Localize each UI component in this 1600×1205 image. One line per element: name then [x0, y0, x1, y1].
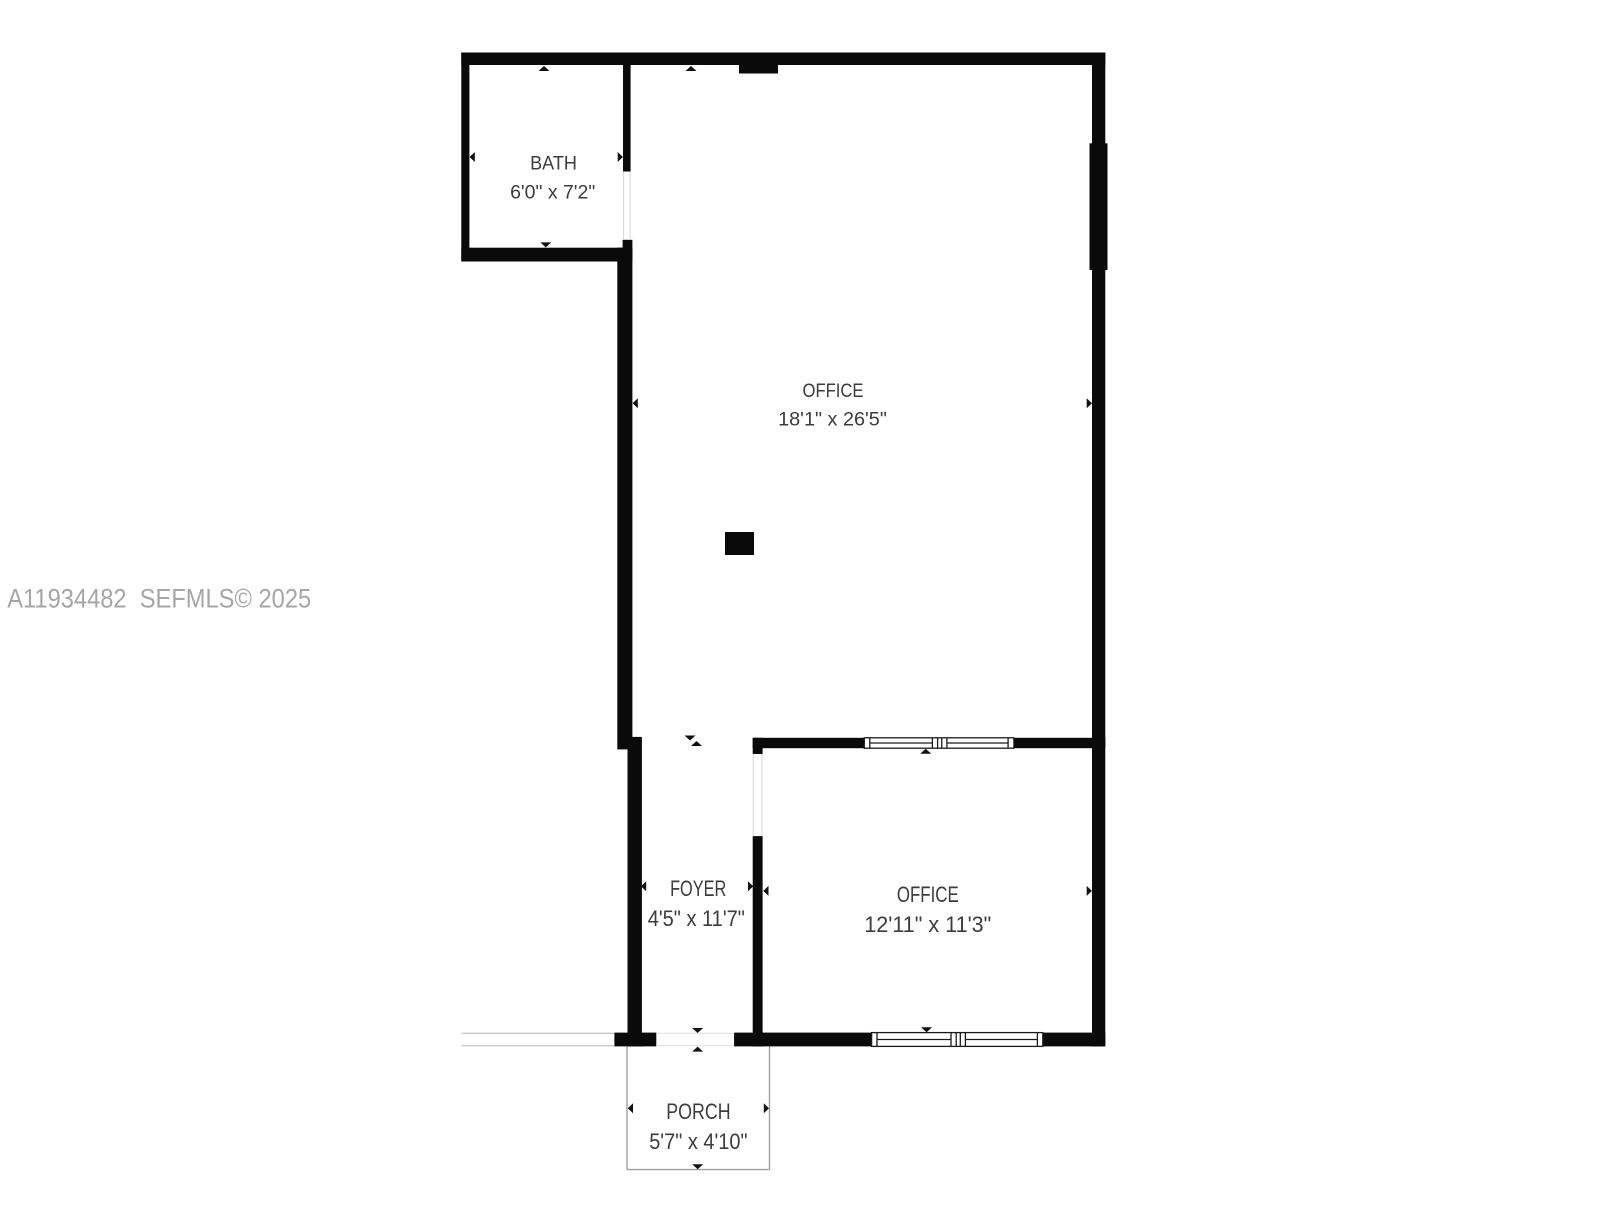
svg-text:BATH: BATH [530, 153, 577, 175]
svg-text:18'1" x 26'5": 18'1" x 26'5" [778, 409, 887, 431]
svg-text:12'11" x 11'3": 12'11" x 11'3" [864, 912, 991, 937]
svg-text:4'5" x 11'7": 4'5" x 11'7" [648, 906, 745, 931]
svg-text:OFFICE: OFFICE [897, 882, 959, 907]
svg-text:FOYER: FOYER [670, 876, 726, 901]
svg-text:5'7" x 4'10": 5'7" x 4'10" [649, 1129, 747, 1154]
svg-text:PORCH: PORCH [666, 1099, 730, 1124]
svg-text:A11934482 SEFMLS© 2025: A11934482 SEFMLS© 2025 [7, 584, 311, 614]
svg-text:6'0" x 7'2": 6'0" x 7'2" [510, 181, 595, 203]
svg-text:OFFICE: OFFICE [803, 380, 864, 402]
